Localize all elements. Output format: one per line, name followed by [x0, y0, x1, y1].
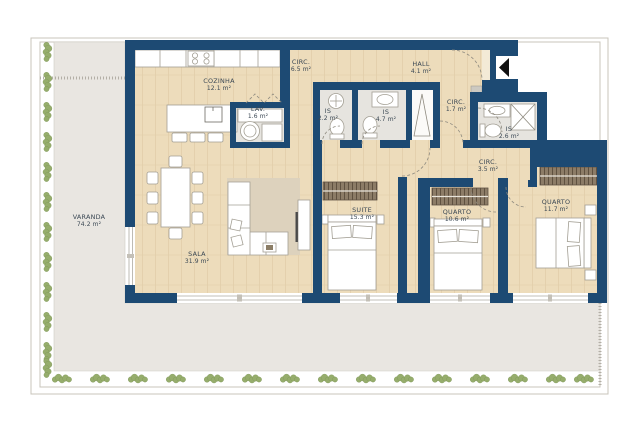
toilet-icon [330, 119, 344, 136]
cooktop-icon [188, 51, 214, 66]
kitchen-counter [135, 50, 280, 67]
washing-machine-icon [241, 122, 260, 141]
tv-cabinet [296, 200, 311, 250]
floor-plan-drawing [0, 0, 640, 427]
entrance-threshold [482, 50, 490, 80]
suite-bed [322, 215, 384, 290]
floor-plan: VARANDA 74.2 m² COZINHA 12.1 m² LAV. 1.6… [0, 0, 640, 427]
quarto1-bed [430, 218, 490, 290]
toilet-icon [363, 117, 377, 134]
tv-icon [296, 212, 298, 242]
toilet-icon [485, 124, 501, 137]
